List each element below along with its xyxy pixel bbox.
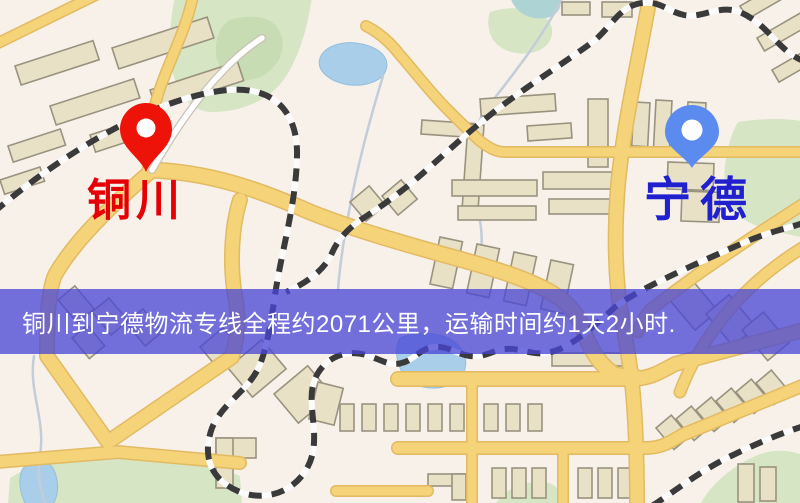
logistics-route-map: 铜川 宁德 铜川到宁德物流专线全程约2071公里，运输时间约1天2小时.: [0, 0, 800, 503]
map-image: [0, 0, 800, 503]
destination-city-label: 宁德: [644, 176, 756, 223]
route-info-text: 铜川到宁德物流专线全程约2071公里，运输时间约1天2小时.: [22, 304, 676, 339]
destination-pin-icon: [665, 105, 719, 168]
route-info-banner: 铜川到宁德物流专线全程约2071公里，运输时间约1天2小时.: [0, 289, 800, 354]
origin-city-label: 铜川: [87, 179, 185, 223]
origin-pin-icon: [120, 103, 172, 172]
